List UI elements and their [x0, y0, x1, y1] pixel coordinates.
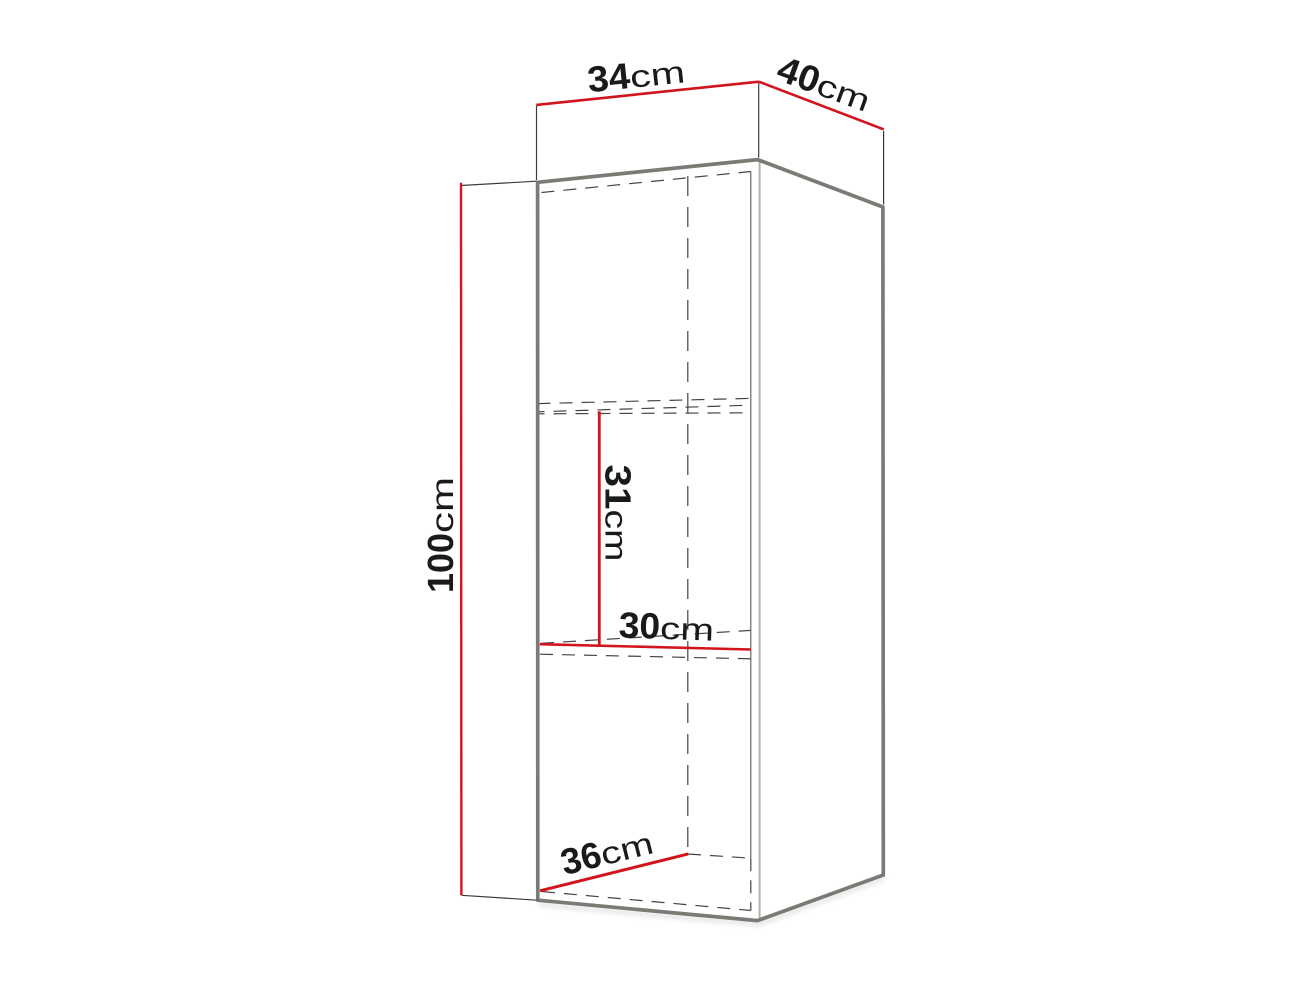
svg-text:31cm: 31cm [598, 465, 639, 562]
svg-text:100cm: 100cm [420, 477, 461, 593]
